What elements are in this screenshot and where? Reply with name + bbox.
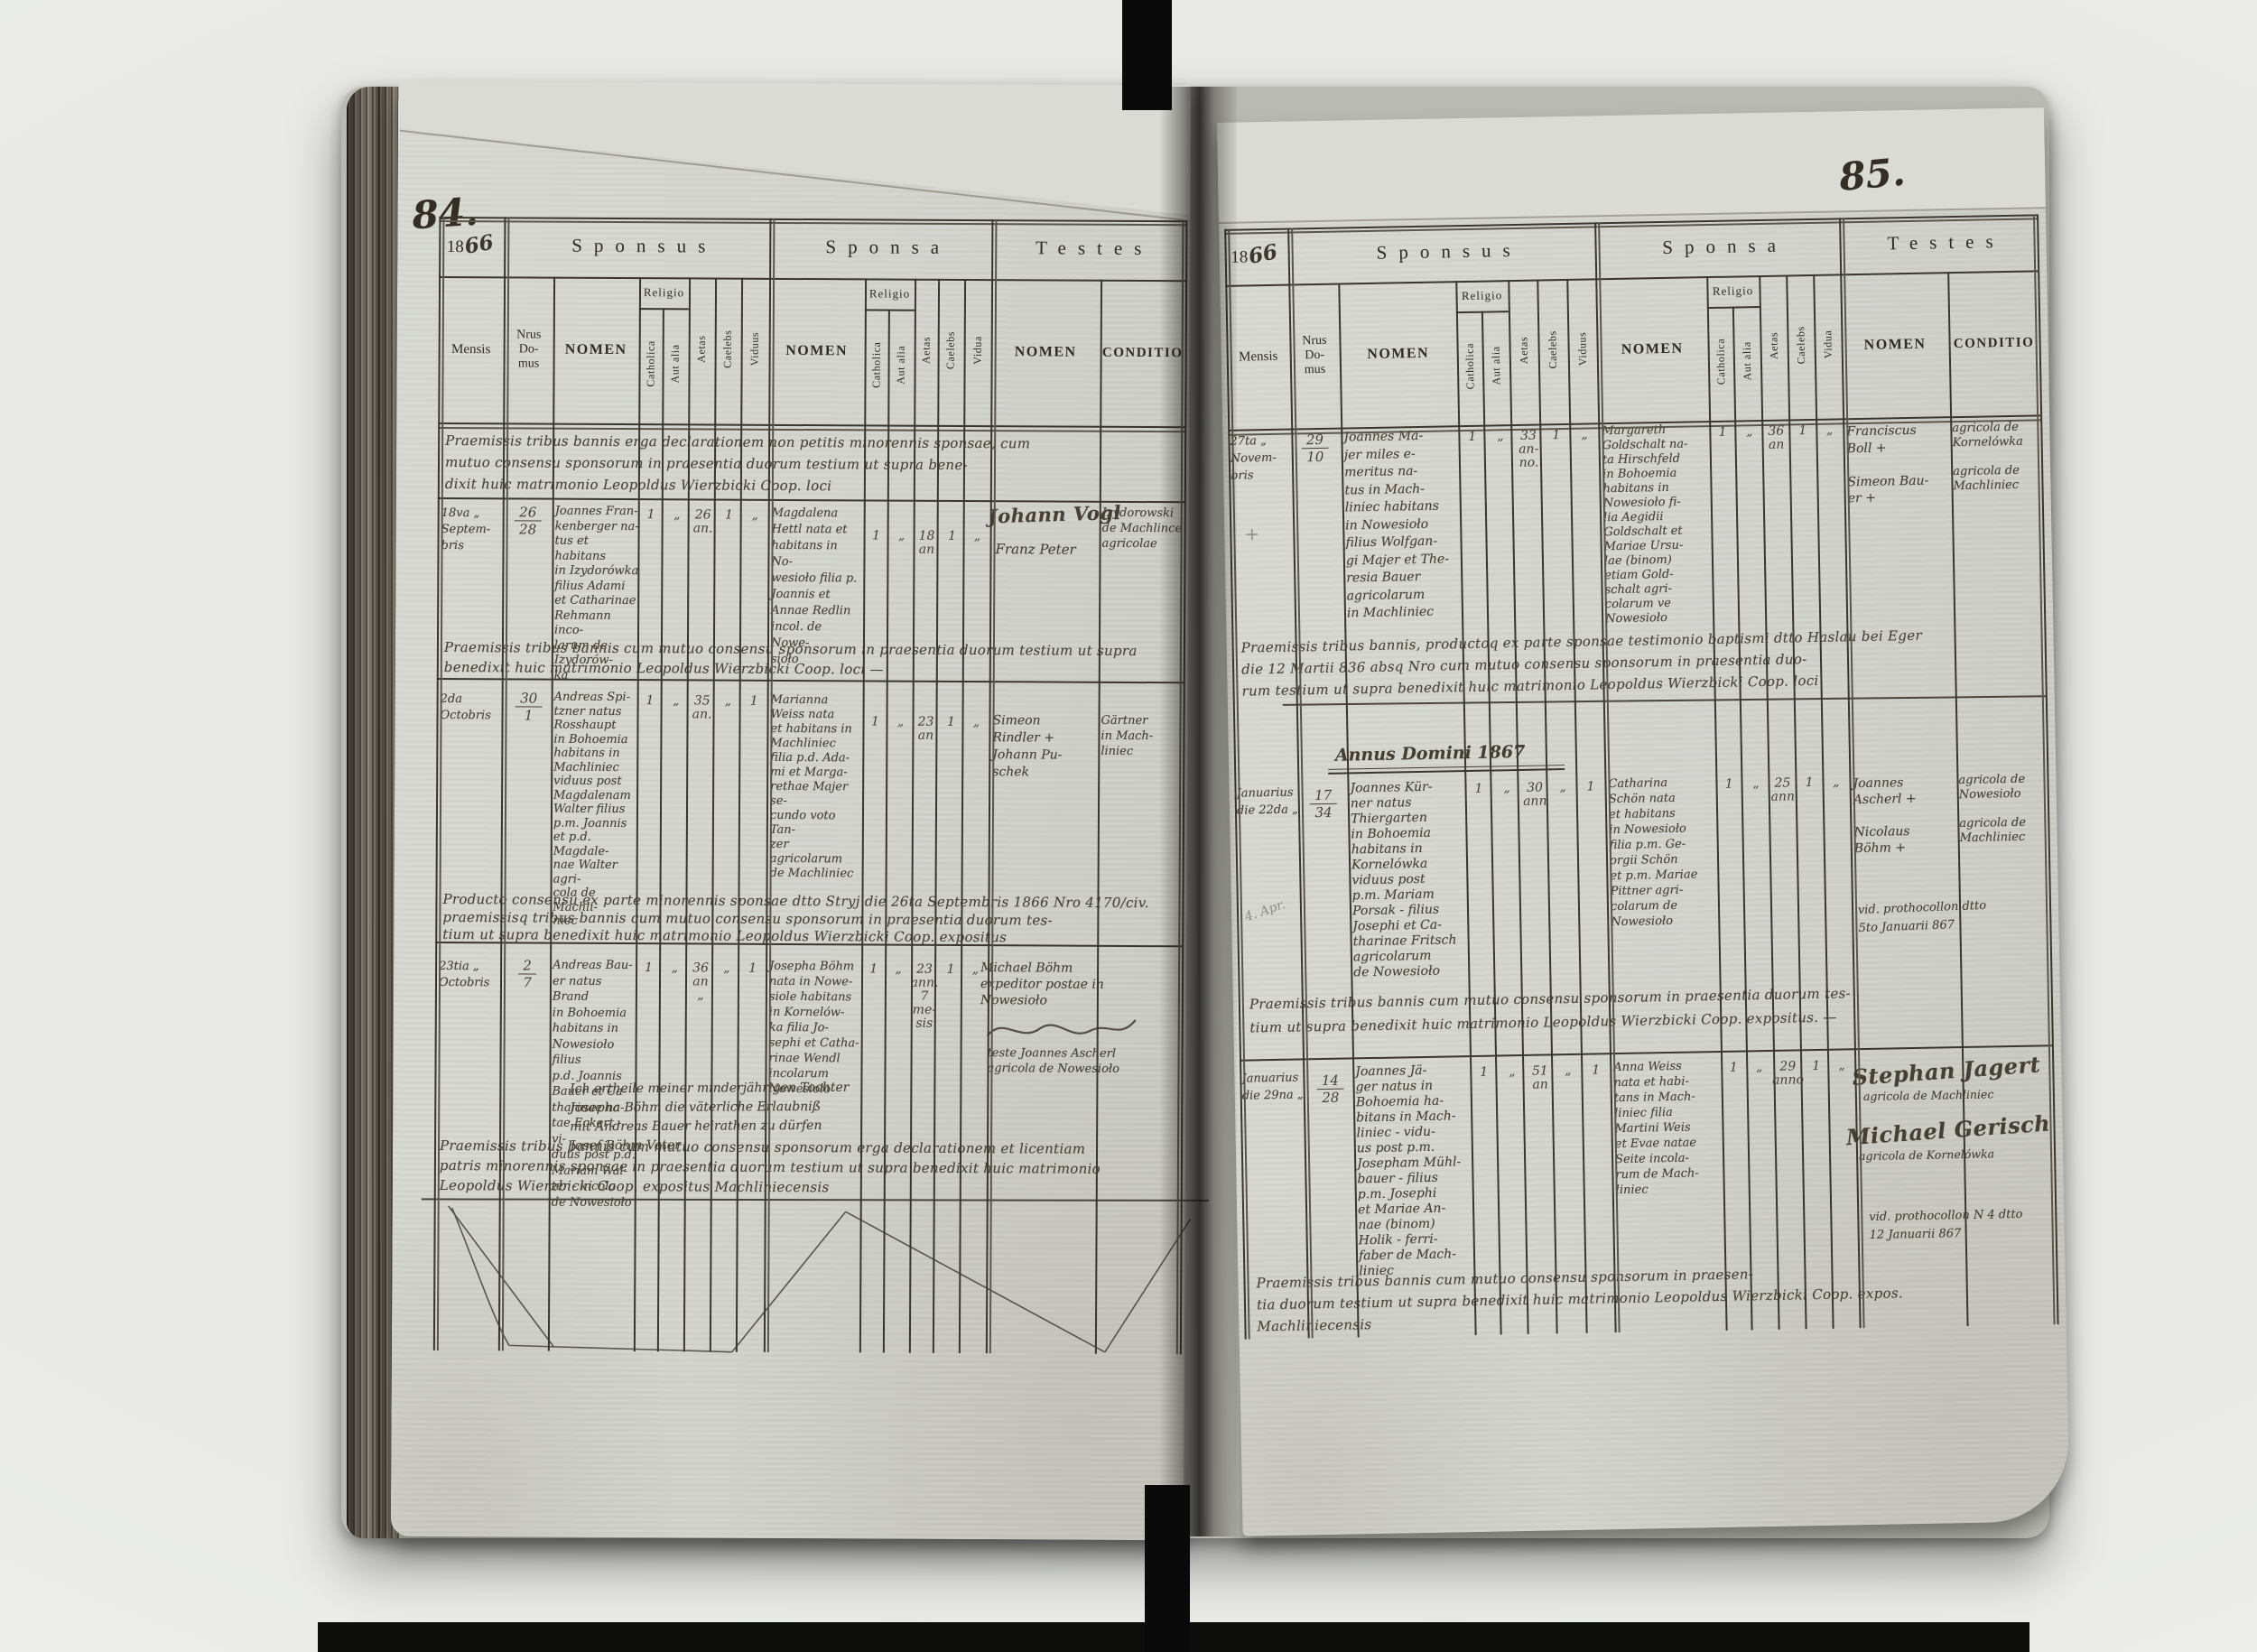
entry-month: Januarius die 22da „ [1236,784,1300,819]
col-header-catholica-sponsa: Catholica [864,309,888,421]
col-header-aetas-sponsa: Aetas [1759,274,1788,416]
sponsa-name: Marianna Weiss nata et habitans in Machl… [770,693,861,882]
aut-alia-mark: „ [886,963,911,1031]
witness-signature: Franz Peter [995,541,1103,558]
witness-signature: Michael Gerisch [1845,1109,2052,1150]
aut-alia-mark: „ [663,694,689,721]
catholica-mark: 1 [1715,777,1742,805]
caelebs-mark: „ [715,695,741,722]
caelebs-mark: 1 [938,716,963,743]
col-header-nomen-sponsa: NOMEN [1595,280,1709,419]
entry-month: 27ta „ Novem- bris [1230,432,1290,485]
right-page: 85. 1866 Sponsus Sponsa Testes Mensis Nr… [1217,107,2070,1536]
marriage-blessing-note: Praemissis tribus bannis cum mutuo conse… [1249,979,2036,1040]
entry-house-number: 2628 [508,504,548,537]
caelebs-mark: 1 [939,530,964,557]
col-header-aetas-sponsus: Aetas [1508,280,1539,422]
sponsus-marks: 1„30 ann„1 [1464,780,1605,810]
aetas-value: 29 anno [1772,1060,1804,1088]
aut-alia-mark: „ [662,961,688,1002]
aetas-value: 36 an „ [687,961,713,1002]
viduus-mark: „ [742,509,768,536]
page-number-right: 85. [1837,150,1907,200]
entry-month: 23tia „ Octobris [439,959,497,991]
aut-alia-mark: „ [1746,1061,1772,1089]
catholica-mark: 1 [1458,431,1487,472]
pencil-cross-mark: + [1244,523,1259,544]
aetas-value: 25 ann [1769,776,1797,804]
catholica-mark: 1 [1709,426,1736,454]
col-header-religio-sponsus: Religio [1455,282,1509,310]
left-page-top-edge [397,81,1191,221]
aetas-value: 35 an. [689,694,715,721]
col-header-caelebs-sponsa: Caelebs [937,279,964,422]
col-header-aut-alia-sponsa: Aut alia [1732,306,1761,417]
col-header-mensis: Mensis [438,280,504,419]
sponsa-marks: 1„29 anno1„ [1721,1059,1855,1089]
viduus-mark: 1 [1582,1063,1611,1091]
sponsus-name: Joannes Ma- jer miles e- meritus na- tus… [1343,427,1459,623]
sponsus-name: Joannes Jä- ger natus in Bohoemia ha- bi… [1355,1063,1471,1279]
catholica-mark: 1 [637,694,664,721]
catholica-mark: 1 [862,715,887,742]
witness-signature: Stephan Jagert [1852,1051,2051,1091]
caelebs-mark: „ [713,962,739,1003]
sponsus-marks: 1„51 an„1 [1470,1063,1611,1093]
witness-conditio: agricola de Nowesioło agricola de Machli… [1958,772,2046,846]
witness-conditio: agricola de Kornelówka agricola de Machl… [1952,420,2039,494]
entry-house-number: 1734 [1302,787,1346,821]
register-table-left: 1866 Sponsus Sponsa Testes Mensis Nrus D… [433,217,1186,1354]
sponsus-marks: 1„36 an „„1 [636,961,766,1003]
section-sponsa-left: Sponsa [773,218,991,275]
col-header-nrus-domus: Nrus Do- mus [1288,287,1341,425]
sponsus-marks: 1„35 an.„1 [637,694,767,722]
signature-flourish [984,1012,1139,1045]
sponsa-marks: 1„25 ann1„ [1715,775,1850,805]
sponsus-marks: 1„33 an- no.1„ [1458,428,1599,471]
aetas-value: 36 an [1762,424,1789,452]
aetas-value: 26 an. [690,508,716,535]
book-strap-top [1122,0,1172,110]
left-page: 84. 1866 Sponsus Sponsa Testes Mensis Nr… [391,81,1191,1541]
aetas-value: 51 an [1526,1064,1555,1092]
col-header-vidua-sponsa: Vidua [963,279,991,422]
entry-month: Januarius die 29na „ [1241,1069,1305,1104]
grid-line [1732,307,1752,1331]
vidua-mark: „ [964,530,989,557]
entry-month: 2da Octobris [440,691,497,724]
col-header-religio-sponsa: Religio [1706,277,1760,305]
catholica-mark: 1 [636,961,662,1002]
heading-underline [1328,765,1565,775]
col-header-catholica-sponsa: Catholica [1707,307,1734,417]
year-handwritten: 66 [463,229,496,258]
crossout-marks [421,1201,1198,1357]
witness-attestation: teste Joannes Ascherl agricola de Nowesi… [987,1046,1151,1077]
grid-line [438,497,1184,503]
witness-conditio: agricola de Machliniec [1863,1086,2044,1103]
aetas-value: 23 an [913,716,938,743]
aut-alia-mark: „ [888,530,914,557]
entry-house-number: 2910 [1293,432,1337,466]
consent-note: Producto consensu ex parte minorennis sp… [442,891,1175,948]
sponsa-name: Margareth Goldschalt na- ta Hirschfeld i… [1602,422,1712,626]
sponsa-marks: 1„18 an1„ [863,529,989,557]
witness-names: Joannes Ascherl + Nicolaus Böhm + [1853,774,1955,857]
witness-names: Simeon Rindler + Johann Pu- schek [992,712,1091,782]
col-header-aetas-sponsa: Aetas [914,279,938,422]
caelebs-mark: „ [1554,1064,1583,1092]
catholica-mark: 1 [638,508,664,535]
witness-conditio: agricola de Kornelówka [1859,1146,2039,1163]
aetas-value: 18 an [914,530,939,557]
col-header-mensis: Mensis [1225,288,1291,426]
aut-alia-mark: „ [1742,777,1769,805]
col-header-caelebs-sponsus: Caelebs [1537,279,1569,421]
col-header-nrus-domus: Nrus Do- mus [505,280,553,419]
book-strap-bottom [1145,1485,1190,1652]
catholica-mark: 1 [863,529,888,556]
witness-conditio: Gärtner in Mach- liniec [1101,713,1180,759]
col-header-aetas-sponsus: Aetas [688,277,715,420]
col-header-conditio: CONDITIO [1947,274,2040,413]
caelebs-mark: 1 [1796,776,1823,804]
col-header-vidua-sponsa: Vidua [1813,274,1843,415]
catholica-mark: 1 [1721,1061,1747,1089]
sponsus-name: Joannes Kür- ner natus Thiergarten in Bo… [1350,779,1465,980]
section-testes-left: Testes [995,219,1182,276]
col-header-religio-sponsa: Religio [865,280,915,307]
grid-line [2037,214,2058,1324]
col-header-nomen-sponsus: NOMEN [553,281,639,420]
marriage-blessing-note: Praemissis tribus bannis cum mutuo conse… [1256,1258,2033,1338]
sponsa-marks: 1„36 an1„ [1709,423,1844,453]
witness-signature: Johann Vogl [988,502,1106,528]
vidua-mark: „ [963,716,989,743]
col-header-catholica-sponsus: Catholica [638,308,663,420]
col-header-nomen-testes: NOMEN [1840,275,1950,414]
sponsus-marks: 1„26 an.1„ [638,508,768,536]
section-testes-right: Testes [1843,214,2038,270]
viduus-mark: 1 [1576,780,1605,808]
entry-house-number: 301 [509,690,549,723]
caelebs-mark: „ [1548,781,1577,809]
year-handwritten: 66 [1247,239,1280,269]
caelebs-mark: 1 [1804,1060,1830,1088]
witness-names: Michael Böhm expeditor postae in Nowesio… [980,960,1139,1009]
right-page-top-edge [1217,107,2046,224]
col-header-conditio: CONDITIO [1100,283,1185,422]
caelebs-mark: 1 [938,963,963,1031]
catholica-mark: 1 [1470,1065,1499,1093]
sponsa-marks: 1„23 an1„ [862,715,989,743]
witness-names: Franciscus Boll + Simeon Bau- er + [1846,422,1949,507]
baptism-testimony-note: Praemissis tribus bannis, productoq ex p… [1240,622,2036,701]
viduus-mark: 1 [741,695,767,722]
sponsa-name: Catharina Schön nata et habitans in Nowe… [1608,775,1717,930]
viduus-mark: 1 [739,962,766,1003]
register-table-right: 1866 Sponsus Sponsa Testes Mensis Nrus D… [1224,214,2057,1339]
aut-alia-mark: „ [664,508,690,535]
col-header-caelebs-sponsus: Caelebs [714,278,741,421]
sponsa-name: Josepha Böhm nata in Nowe- siole habitan… [768,959,859,1098]
col-header-nomen-testes: NOMEN [990,283,1101,422]
protocol-reference-note: vid. prothocollon dtto 5to Januarii 867 [1858,896,2047,938]
viduus-mark: „ [1570,428,1599,469]
caelebs-mark: 1 [1789,424,1816,452]
year-cell-right: 1866 [1224,234,1285,282]
annus-domini-heading: Annus Domini 1867 [1335,742,1526,766]
col-header-nomen-sponsa: NOMEN [768,282,865,422]
entry-house-number: 1428 [1308,1072,1352,1106]
col-header-viduus-sponsus: Viduus [740,278,769,421]
aut-alia-mark: „ [1736,425,1763,453]
year-printed: 18 [447,237,464,257]
caelebs-mark: 1 [716,509,742,536]
scanned-register-photo: 84. 1866 Sponsus Sponsa Testes Mensis Nr… [0,0,2257,1652]
witness-conditio: Izydorowski de Machlince agricolae [1102,506,1184,552]
col-header-aut-alia-sponsus: Aut alia [1481,311,1510,422]
sponsa-name: Anna Weiss nata et habi- tans in Mach- l… [1613,1058,1724,1198]
year-cell-left: 1866 [439,224,502,271]
col-header-catholica-sponsus: Catholica [1456,311,1483,422]
catholica-mark: 1 [1464,783,1493,811]
entry-month: 18va „ Septem- bris [441,506,498,554]
sponsa-marks: 1„23 ann. 7 me- sis1„ [861,962,988,1031]
section-sponsus-left: Sponsus [507,217,769,274]
pencil-date-note: 4. Apr. [1243,897,1287,924]
entry-house-number: 27 [509,957,545,990]
year-printed: 18 [1231,247,1248,267]
marriage-blessing-note: Praemissis tribus bannis cum mutuo conse… [444,637,1175,681]
aut-alia-mark: „ [887,716,913,743]
aetas-value: 33 an- no. [1514,429,1543,470]
vidua-mark: „ [1823,775,1850,803]
col-header-aut-alia-sponsus: Aut alia [662,308,689,420]
col-header-nomen-sponsus: NOMEN [1338,284,1458,423]
col-header-viduus-sponsus: Viduus [1566,278,1598,420]
vidua-mark: „ [1816,423,1844,451]
caelebs-mark: 1 [1542,429,1571,470]
col-header-aut-alia-sponsa: Aut alia [887,310,915,422]
col-header-religio-sponsus: Religio [639,279,689,306]
aetas-value: 30 ann [1520,781,1549,809]
catholica-mark: 1 [861,962,887,1030]
col-header-caelebs-sponsa: Caelebs [1786,274,1816,416]
